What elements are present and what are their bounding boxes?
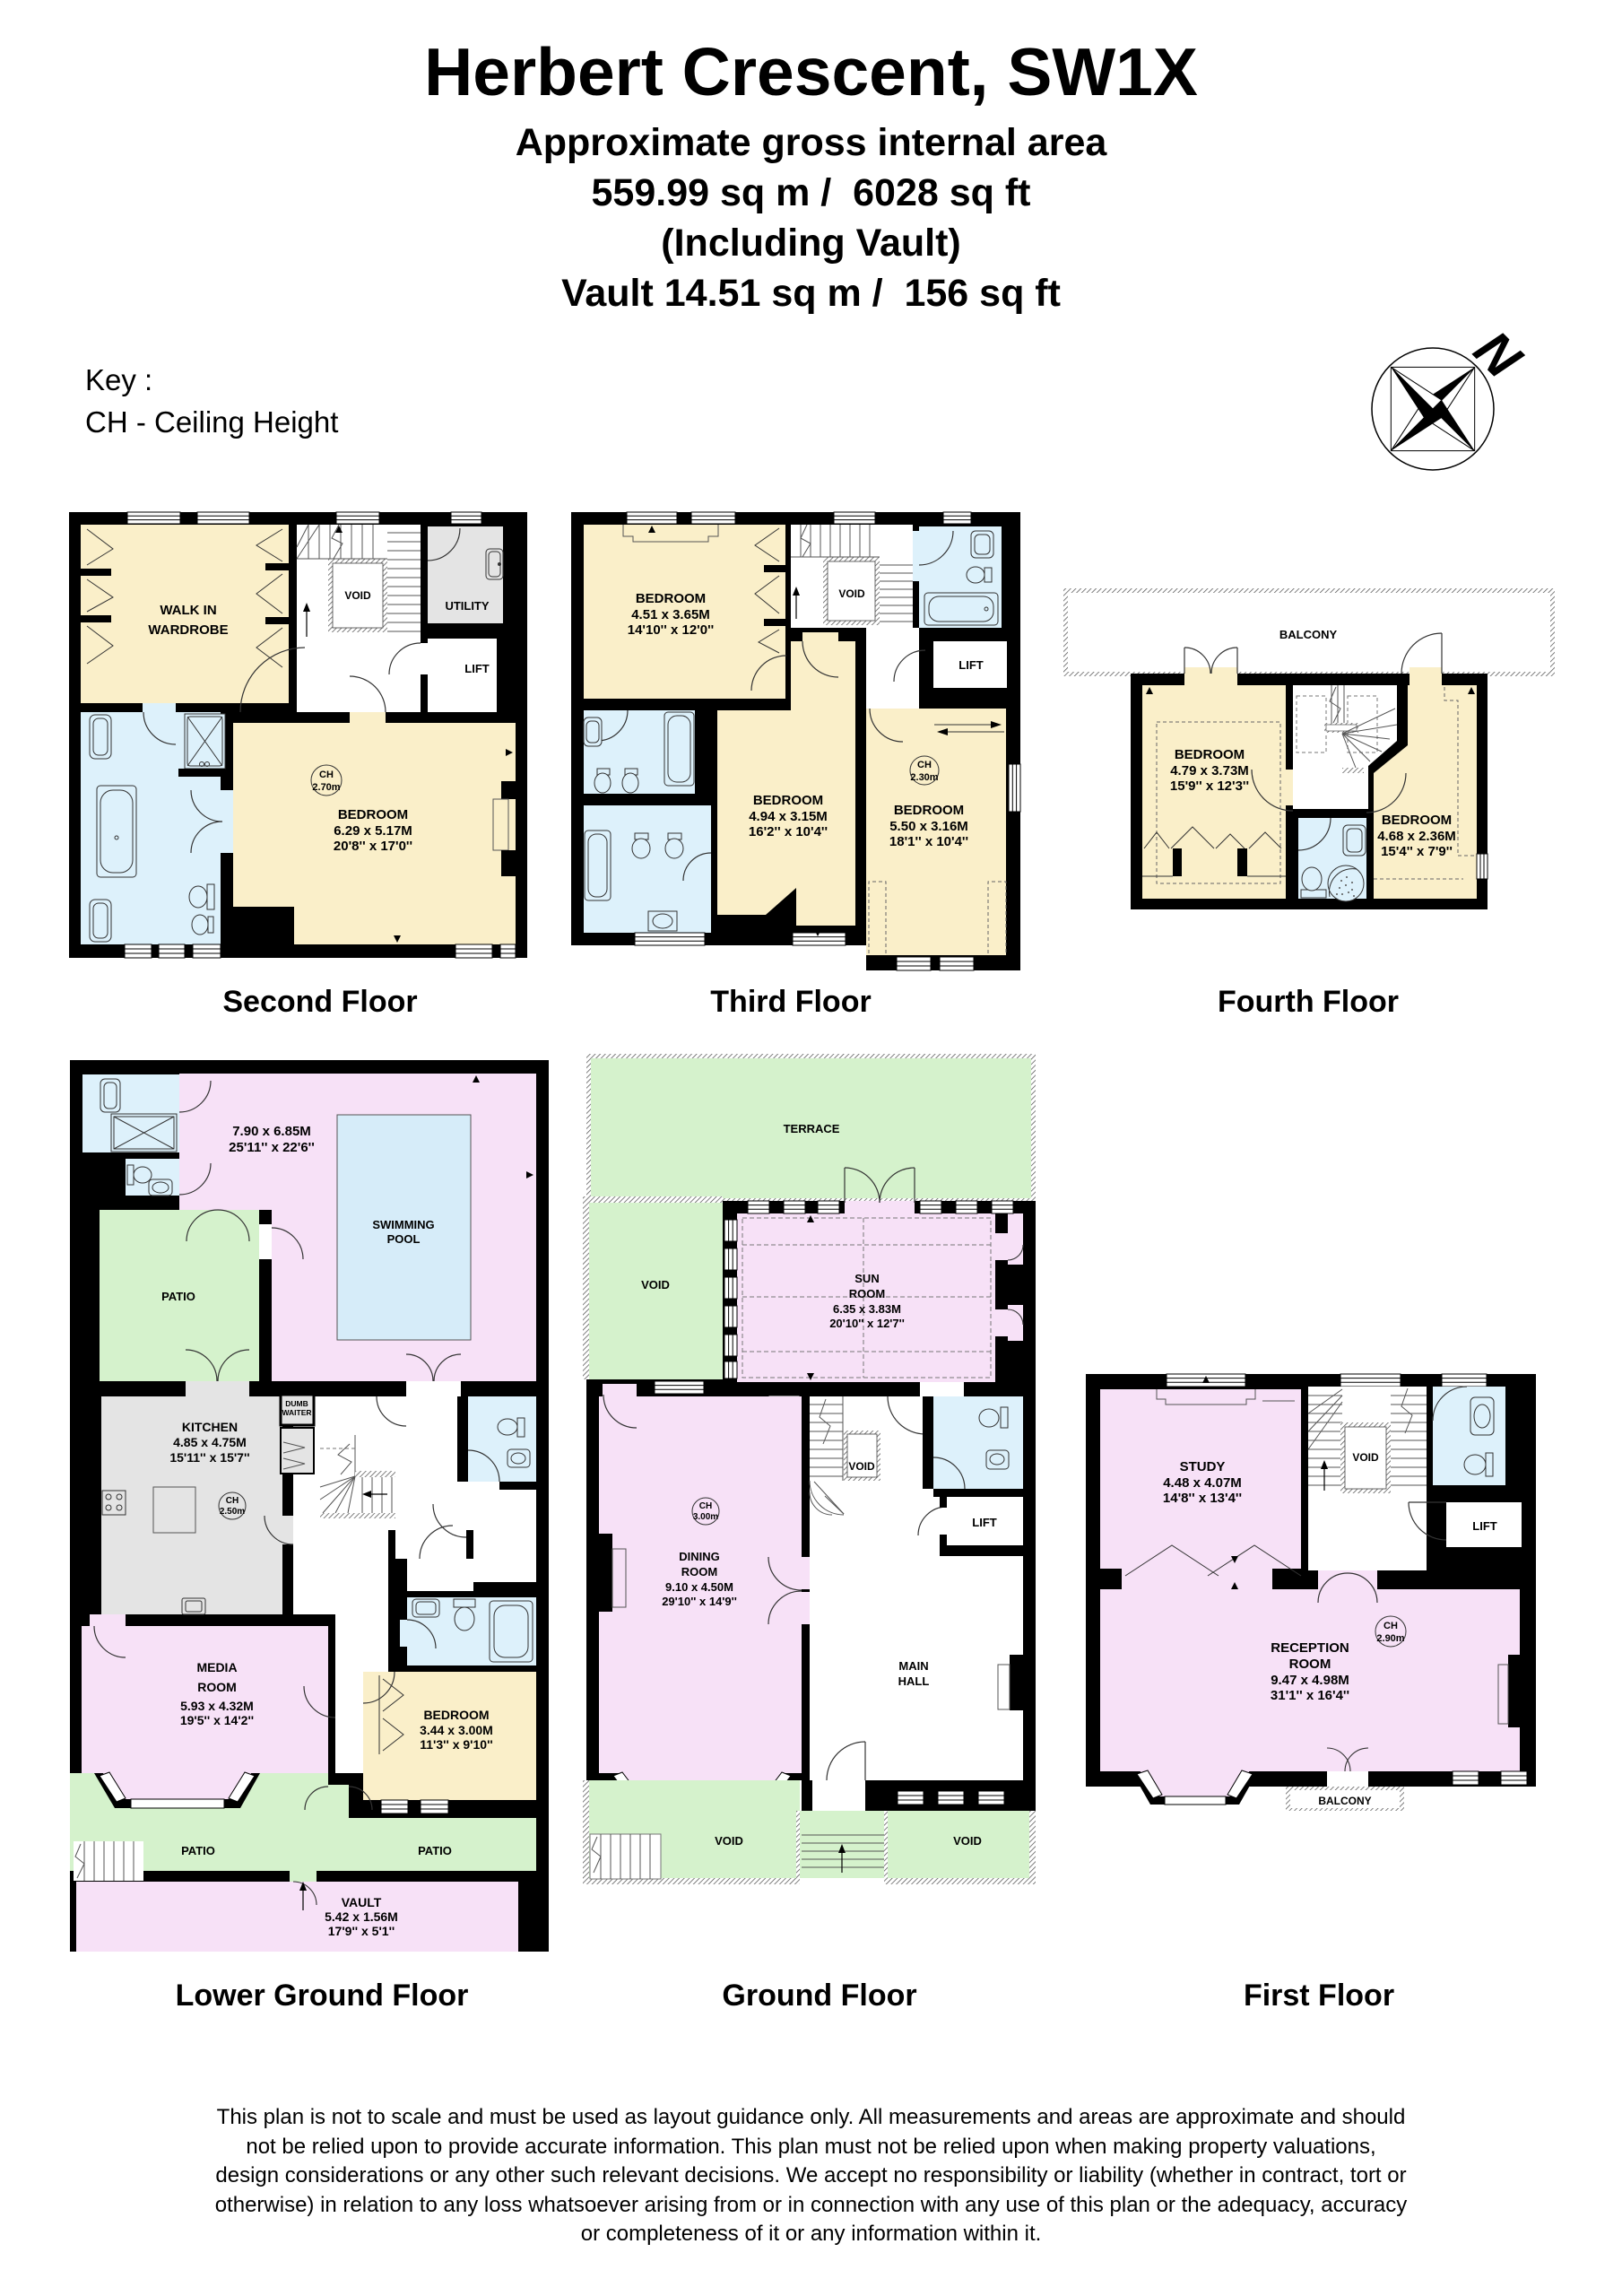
svg-text:9.10 x 4.50M: 9.10 x 4.50M — [665, 1580, 733, 1594]
svg-text:BALCONY: BALCONY — [1279, 628, 1338, 641]
svg-text:25'11'' x 22'6'': 25'11'' x 22'6'' — [229, 1140, 315, 1155]
svg-text:CH: CH — [319, 770, 334, 780]
svg-text:VOID: VOID — [848, 1460, 875, 1473]
svg-text:LIFT: LIFT — [464, 662, 489, 675]
svg-text:RECEPTION: RECEPTION — [1271, 1640, 1349, 1656]
svg-text:BEDROOM: BEDROOM — [338, 807, 408, 822]
svg-text:4.85 x 4.75M: 4.85 x 4.75M — [173, 1435, 247, 1449]
svg-text:CH: CH — [917, 760, 932, 770]
svg-text:VOID: VOID — [953, 1834, 982, 1848]
svg-text:3.00m: 3.00m — [693, 1512, 718, 1522]
svg-text:6.29 x 5.17M: 6.29 x 5.17M — [334, 823, 412, 839]
svg-text:CH: CH — [699, 1501, 712, 1511]
svg-text:14'10'' x 12'0'': 14'10'' x 12'0'' — [628, 622, 714, 638]
svg-text:BEDROOM: BEDROOM — [423, 1708, 489, 1722]
svg-text:ROOM: ROOM — [849, 1287, 885, 1300]
svg-text:WAITER: WAITER — [282, 1408, 311, 1417]
svg-text:2.30m: 2.30m — [910, 772, 938, 783]
svg-text:LIFT: LIFT — [958, 658, 983, 672]
svg-text:PATIO: PATIO — [161, 1290, 195, 1303]
svg-text:PATIO: PATIO — [418, 1844, 452, 1857]
svg-text:CH: CH — [226, 1496, 239, 1506]
svg-text:4.79 x 3.73M: 4.79 x 3.73M — [1170, 763, 1249, 778]
svg-text:MAIN: MAIN — [898, 1659, 928, 1673]
svg-text:WALK IN: WALK IN — [160, 603, 216, 618]
svg-text:2.50m: 2.50m — [220, 1507, 245, 1517]
svg-text:15'11'' x 15'7'': 15'11'' x 15'7'' — [169, 1450, 249, 1465]
svg-text:20'8'' x 17'0'': 20'8'' x 17'0'' — [334, 839, 412, 854]
svg-text:LIFT: LIFT — [1472, 1519, 1496, 1533]
svg-text:VOID: VOID — [1352, 1451, 1379, 1464]
svg-text:16'2'' x 10'4'': 16'2'' x 10'4'' — [749, 824, 828, 839]
svg-text:6.35 x 3.83M: 6.35 x 3.83M — [833, 1302, 901, 1316]
svg-text:7.90 x 6.85M: 7.90 x 6.85M — [232, 1124, 311, 1139]
svg-text:14'8'' x 13'4'': 14'8'' x 13'4'' — [1163, 1491, 1242, 1506]
svg-text:VOID: VOID — [715, 1834, 743, 1848]
svg-text:DUMB: DUMB — [285, 1399, 308, 1408]
svg-text:4.51 x 3.65M: 4.51 x 3.65M — [631, 607, 710, 622]
svg-text:9.47 x 4.98M: 9.47 x 4.98M — [1271, 1673, 1349, 1688]
svg-text:ROOM: ROOM — [197, 1680, 237, 1694]
svg-text:BEDROOM: BEDROOM — [1382, 813, 1452, 828]
svg-text:31'1'' x 16'4'': 31'1'' x 16'4'' — [1271, 1688, 1349, 1703]
svg-text:HALL: HALL — [898, 1674, 930, 1688]
svg-text:19'5'' x 14'2'': 19'5'' x 14'2'' — [180, 1713, 254, 1727]
svg-text:18'1'' x 10'4'': 18'1'' x 10'4'' — [889, 834, 968, 849]
svg-text:SWIMMING: SWIMMING — [372, 1218, 434, 1231]
svg-text:4.48 x 4.07M: 4.48 x 4.07M — [1163, 1475, 1242, 1491]
svg-text:VOID: VOID — [838, 587, 865, 600]
svg-text:2.70m: 2.70m — [312, 782, 340, 793]
svg-text:BEDROOM: BEDROOM — [894, 803, 964, 818]
svg-text:15'4'' x 7'9'': 15'4'' x 7'9'' — [1381, 844, 1453, 859]
svg-text:SUN: SUN — [854, 1272, 879, 1285]
svg-text:LIFT: LIFT — [972, 1516, 996, 1529]
svg-text:20'10'' x 12'7'': 20'10'' x 12'7'' — [829, 1317, 905, 1330]
svg-text:VOID: VOID — [641, 1278, 670, 1291]
svg-text:2.90m: 2.90m — [1376, 1633, 1404, 1644]
svg-text:11'3'' x 9'10'': 11'3'' x 9'10'' — [420, 1737, 492, 1752]
svg-text:4.94 x 3.15M: 4.94 x 3.15M — [749, 809, 828, 824]
svg-text:5.93 x 4.32M: 5.93 x 4.32M — [180, 1699, 254, 1713]
svg-text:KITCHEN: KITCHEN — [182, 1420, 238, 1434]
svg-text:ROOM: ROOM — [1289, 1657, 1331, 1672]
svg-text:VAULT: VAULT — [342, 1895, 382, 1909]
svg-text:4.68 x 2.36M: 4.68 x 2.36M — [1377, 829, 1456, 844]
svg-text:CH: CH — [1383, 1621, 1398, 1631]
svg-text:N: N — [1462, 319, 1533, 390]
svg-text:UTILITY: UTILITY — [445, 599, 489, 613]
svg-text:PATIO: PATIO — [181, 1844, 215, 1857]
svg-text:15'9'' x 12'3'': 15'9'' x 12'3'' — [1170, 778, 1249, 794]
svg-text:29'10'' x 14'9'': 29'10'' x 14'9'' — [662, 1595, 737, 1608]
svg-text:BALCONY: BALCONY — [1318, 1795, 1371, 1807]
svg-text:ROOM: ROOM — [681, 1565, 717, 1578]
svg-text:WARDROBE: WARDROBE — [148, 622, 228, 638]
svg-text:5.50 x 3.16M: 5.50 x 3.16M — [889, 819, 968, 834]
svg-text:DINING: DINING — [679, 1550, 720, 1563]
svg-text:VOID: VOID — [344, 589, 371, 602]
svg-text:BEDROOM: BEDROOM — [753, 793, 823, 808]
svg-text:MEDIA: MEDIA — [196, 1660, 237, 1674]
svg-text:POOL: POOL — [387, 1232, 421, 1246]
svg-text:BEDROOM: BEDROOM — [1175, 747, 1245, 762]
svg-text:5.42 x 1.56M: 5.42 x 1.56M — [325, 1909, 398, 1924]
svg-text:TERRACE: TERRACE — [784, 1122, 840, 1135]
svg-text:BEDROOM: BEDROOM — [636, 591, 706, 606]
svg-text:STUDY: STUDY — [1180, 1459, 1226, 1474]
svg-text:3.44 x 3.00M: 3.44 x 3.00M — [420, 1723, 493, 1737]
svg-text:17'9'' x 5'1'': 17'9'' x 5'1'' — [328, 1924, 395, 1938]
